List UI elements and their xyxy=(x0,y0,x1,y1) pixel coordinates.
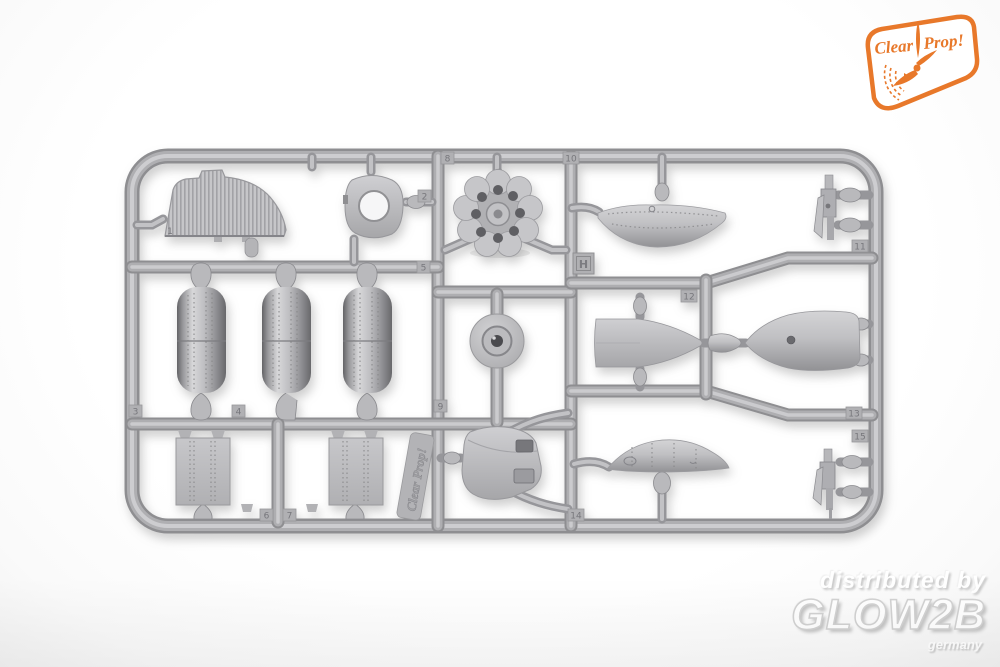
part-tag-3: 3 xyxy=(129,405,142,418)
part-tag-8: 8 xyxy=(441,152,454,165)
brand-word-2: Prop! xyxy=(922,31,965,54)
clearprop-logo-svg: Clear Prop! xyxy=(858,12,986,112)
part-cowl-front xyxy=(462,427,541,500)
watermark-brand: GLOW2B xyxy=(791,594,986,637)
part-pointed-fairing xyxy=(595,319,703,367)
watermark-country: germany xyxy=(791,638,986,651)
part-ribbed-radiator-panel xyxy=(165,170,286,236)
svg-text:10: 10 xyxy=(565,155,577,165)
part-tag-4: 4 xyxy=(232,405,245,418)
part-tag-5: 5 xyxy=(417,261,430,274)
part-hull-top xyxy=(598,205,726,247)
product-photo: 1 2 3 4 5 6 7 8 xyxy=(0,0,1000,667)
part-tag-6: 6 xyxy=(260,509,273,522)
part-cowling-ring xyxy=(343,176,403,238)
svg-text:6: 6 xyxy=(264,512,270,522)
svg-text:7: 7 xyxy=(287,512,293,522)
svg-text:14: 14 xyxy=(570,512,582,522)
sprue-letter-badge: H xyxy=(573,253,594,274)
part-drop-tank xyxy=(745,311,860,371)
part-tag-9: 9 xyxy=(434,400,447,413)
part-hub-disc xyxy=(470,314,524,368)
svg-text:8: 8 xyxy=(445,155,451,165)
part-tag-11: 11 xyxy=(852,240,868,253)
svg-text:15: 15 xyxy=(854,433,865,443)
watermark-line1: distributed by xyxy=(791,569,986,592)
part-tag-13: 13 xyxy=(846,407,862,420)
svg-text:3: 3 xyxy=(133,408,139,418)
part-airfoil-fairing xyxy=(607,440,729,472)
part-tag-1: 1 xyxy=(167,227,173,237)
part-bullet-spinner xyxy=(708,334,741,353)
svg-text:11: 11 xyxy=(854,243,865,253)
distributor-watermark: distributed by GLOW2B germany xyxy=(791,569,986,651)
part-hatch-panel-1 xyxy=(176,438,230,505)
svg-text:5: 5 xyxy=(421,264,427,274)
svg-text:12: 12 xyxy=(683,293,694,303)
part-drum-segment-1 xyxy=(177,287,226,393)
part-tag-2: 2 xyxy=(418,190,431,203)
part-tag-12: 12 xyxy=(681,290,697,303)
svg-text:13: 13 xyxy=(848,410,859,420)
runner-right-upper-fork xyxy=(571,258,872,283)
svg-text:9: 9 xyxy=(438,403,444,413)
molded-brand-script: Clear Prop! xyxy=(396,432,435,521)
part-machine-gun-top xyxy=(814,175,836,240)
part-hatch-panel-2 xyxy=(329,438,383,505)
part-tag-15: 15 xyxy=(852,430,868,443)
part-drum-segment-2 xyxy=(262,287,311,393)
part-tag-14: 14 xyxy=(568,509,584,522)
part-tag-10: 10 xyxy=(563,152,579,165)
clearprop-logo-badge: Clear Prop! xyxy=(858,12,986,112)
runner-right-lower-fork xyxy=(571,391,872,415)
part-drum-segment-3 xyxy=(343,287,392,393)
brand-word-1: Clear xyxy=(874,36,915,58)
sprue-letter: H xyxy=(579,258,588,271)
part-machine-gun-bottom xyxy=(813,449,835,519)
svg-text:4: 4 xyxy=(236,408,242,418)
svg-text:2: 2 xyxy=(422,193,428,203)
part-tag-7: 7 xyxy=(283,509,296,522)
